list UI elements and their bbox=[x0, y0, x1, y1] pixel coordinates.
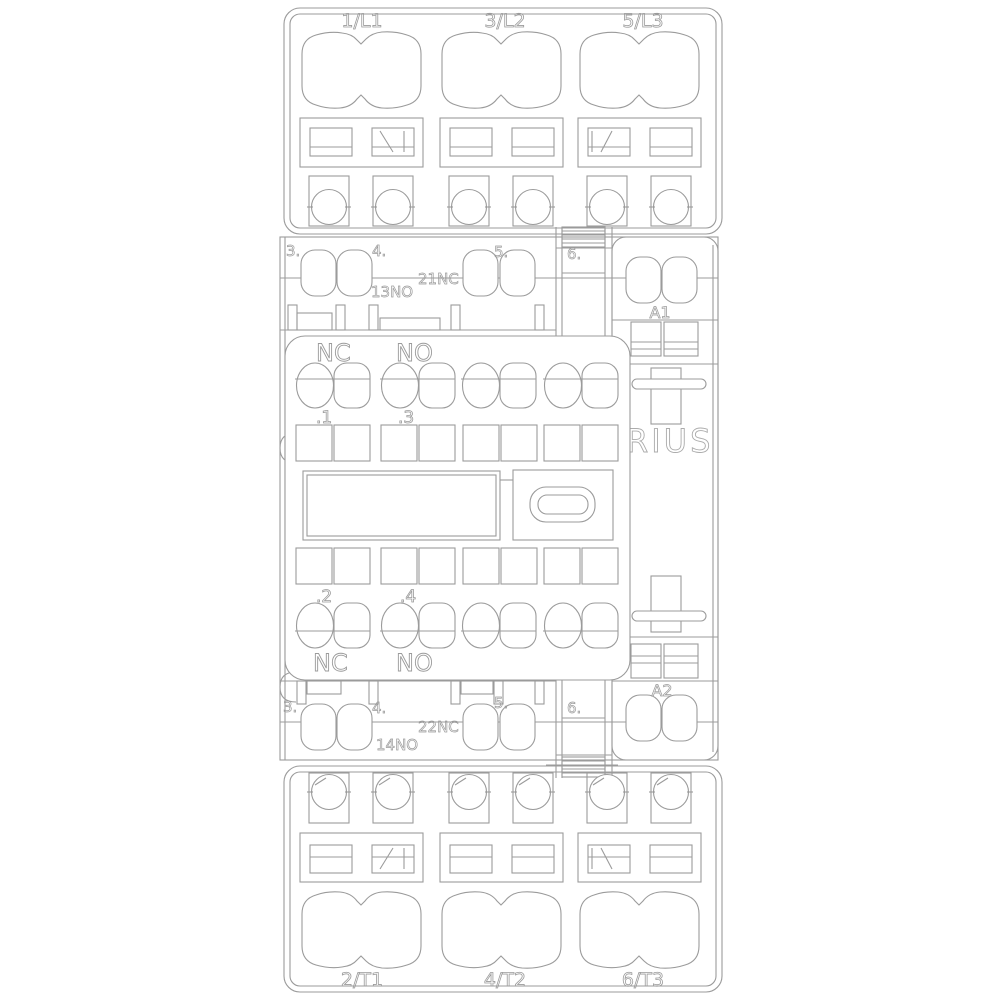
screw-terminal bbox=[307, 176, 351, 226]
contactor-drawing-canvas: 1/L1 3/L2 5/L3 bbox=[0, 0, 1000, 1000]
release-lever-mark bbox=[380, 131, 404, 152]
screw-terminal bbox=[511, 176, 555, 226]
cable-opening bbox=[302, 32, 421, 108]
screw-terminal bbox=[585, 176, 629, 226]
release-slot-box bbox=[578, 118, 701, 167]
aux-pos-5: 5. bbox=[494, 243, 508, 261]
aux-label-21nc: 21NC bbox=[418, 270, 459, 288]
cable-opening bbox=[442, 892, 561, 968]
power-terminal-group-5L3: 5/L3 bbox=[578, 10, 701, 226]
terminal-label-6T3: 6/T3 bbox=[622, 969, 664, 991]
power-terminal-group-4T2: 4/T2 bbox=[440, 773, 563, 991]
release-slot-box bbox=[440, 118, 563, 167]
coil-terminal-a1 bbox=[626, 257, 661, 303]
coil-slot bbox=[664, 644, 698, 678]
latch-pin-bottom bbox=[632, 611, 706, 621]
screw-terminal bbox=[307, 773, 351, 823]
screw-terminal bbox=[371, 773, 415, 823]
terminal-label-3L2: 3/L2 bbox=[484, 10, 525, 32]
wire-release-slot bbox=[310, 128, 352, 156]
aux-terminal bbox=[337, 704, 372, 750]
aux-terminal bbox=[301, 250, 336, 296]
aux-pos-4: 4. bbox=[372, 699, 386, 717]
screw-terminal bbox=[371, 176, 415, 226]
coil-label-a1: A1 bbox=[649, 303, 670, 322]
aux-contact-row-bottom: 3. 4. 5. 6. 22NC 14NO bbox=[283, 694, 581, 754]
terminal-label-5L3: 5/L3 bbox=[622, 10, 663, 32]
aux-block-nc-bottom: NC bbox=[313, 649, 348, 677]
power-terminal-group-6T3: 6/T3 bbox=[578, 773, 701, 991]
power-terminal-group-3L2: 3/L2 bbox=[440, 10, 563, 226]
screw-terminal bbox=[447, 773, 491, 823]
wire-release-slot bbox=[588, 845, 630, 873]
coil-slot bbox=[631, 322, 661, 356]
aux-pos-5: 5. bbox=[494, 694, 508, 712]
aux-pos-6: 6. bbox=[567, 699, 581, 717]
wire-release-slot bbox=[372, 845, 414, 873]
coil-terminal-a2 bbox=[626, 695, 661, 741]
release-lever-mark bbox=[380, 848, 404, 869]
aux-pos-3: 3. bbox=[286, 242, 300, 260]
cable-opening bbox=[580, 892, 699, 968]
cable-opening bbox=[442, 32, 561, 108]
screw-terminal bbox=[649, 176, 693, 226]
mount-comb-bottom bbox=[280, 681, 556, 704]
cable-opening bbox=[302, 892, 421, 968]
wire-release-slot bbox=[512, 128, 554, 156]
brand-text: RIUS bbox=[626, 422, 713, 460]
wire-release-slot bbox=[310, 845, 352, 873]
power-terminal-group-2T1: 2/T1 bbox=[300, 773, 423, 991]
coil-terminal-a2 bbox=[662, 695, 697, 741]
terminal-label-1L1: 1/L1 bbox=[341, 10, 382, 32]
aux-pos-3: 3. bbox=[283, 698, 297, 716]
latch-pole-top bbox=[651, 368, 681, 424]
wire-release-slot bbox=[650, 128, 692, 156]
coil-slot bbox=[631, 644, 661, 678]
wire-release-slot bbox=[450, 128, 492, 156]
wire-release-slot bbox=[588, 128, 630, 156]
aux-contact-row-top: 3. 4. 5. 6. 21NC 13NO bbox=[286, 242, 581, 301]
aux-label-14no: 14NO bbox=[376, 736, 418, 754]
terminal-label-4T2: 4/T2 bbox=[484, 969, 526, 991]
aux-pos-6: 6. bbox=[567, 245, 581, 263]
cable-opening bbox=[580, 32, 699, 108]
release-lever-mark bbox=[592, 848, 612, 869]
contactor-technical-drawing: 1/L1 3/L2 5/L3 bbox=[0, 0, 1000, 1000]
wire-release-slot bbox=[450, 845, 492, 873]
release-lever-mark bbox=[592, 131, 612, 152]
aux-terminal bbox=[463, 704, 498, 750]
terminal-label-2T1: 2/T1 bbox=[341, 969, 383, 991]
aux-terminal bbox=[337, 250, 372, 296]
wire-release-slot bbox=[650, 845, 692, 873]
top-terminal-block: 1/L1 3/L2 5/L3 bbox=[284, 8, 722, 234]
aux-label-22nc: 22NC bbox=[418, 718, 459, 736]
aux-pos-4: 4. bbox=[372, 242, 386, 260]
coil-slot bbox=[664, 322, 698, 356]
coil-terminal-a1 bbox=[662, 257, 697, 303]
screw-terminal bbox=[649, 773, 693, 823]
mount-comb-top bbox=[280, 305, 556, 330]
power-terminal-group-1L1: 1/L1 bbox=[300, 10, 423, 226]
aux-terminal bbox=[301, 704, 336, 750]
aux-label-13no: 13NO bbox=[371, 283, 413, 301]
latch-pole-bottom bbox=[651, 576, 681, 632]
wire-release-slot bbox=[512, 845, 554, 873]
front-aux-switch-block: NC NO .1 .3 bbox=[285, 336, 630, 680]
bottom-terminal-block: 2/T1 4/T2 6/T3 bbox=[284, 766, 722, 992]
latch-pin-top bbox=[632, 379, 706, 389]
aux-terminal bbox=[463, 250, 498, 296]
screw-terminal bbox=[511, 773, 555, 823]
screw-terminal bbox=[447, 176, 491, 226]
coil-label-a2: A2 bbox=[651, 681, 672, 700]
aux-block-no-bottom: NO bbox=[396, 649, 433, 677]
screw-terminal bbox=[585, 773, 629, 823]
